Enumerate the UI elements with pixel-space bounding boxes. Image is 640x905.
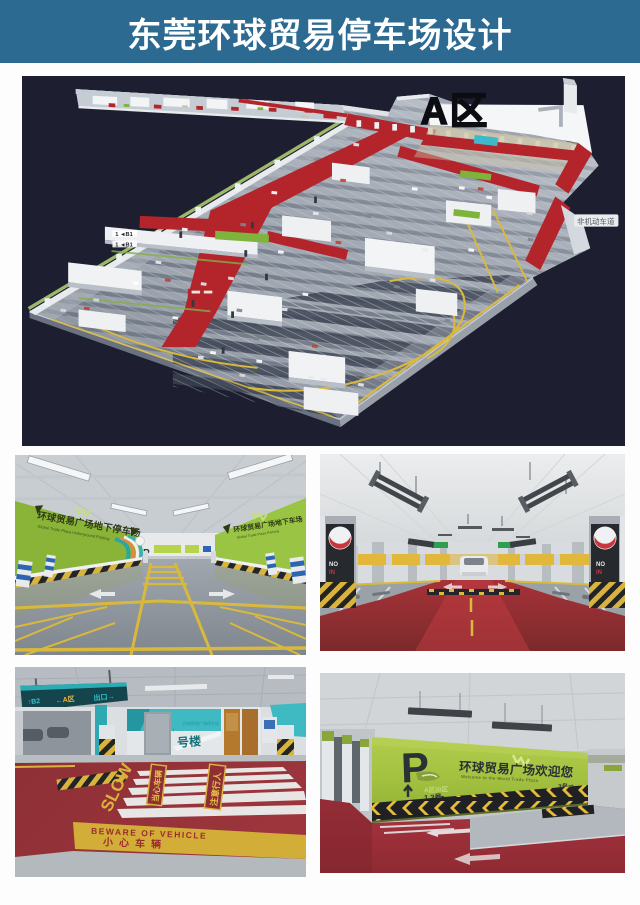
svg-text:P: P xyxy=(400,744,430,792)
svg-text:1 ◄B1: 1 ◄B1 xyxy=(115,242,133,248)
svg-text:A区: A区 xyxy=(421,90,490,132)
svg-text:号楼: 号楼 xyxy=(177,733,202,750)
svg-text:NO: NO xyxy=(596,562,605,568)
svg-text:↑: ↑ xyxy=(172,728,175,734)
svg-text:←A区: ←A区 xyxy=(55,695,75,705)
svg-text:IN: IN xyxy=(596,570,602,576)
svg-text:1 ◄B1: 1 ◄B1 xyxy=(115,232,133,238)
svg-text:IN: IN xyxy=(329,570,335,576)
svg-text:环球贸易广场停车场: 环球贸易广场停车场 xyxy=(183,720,219,726)
svg-text:NO: NO xyxy=(329,562,338,568)
svg-text:↑B2: ↑B2 xyxy=(27,698,40,706)
svg-text:非机动车道: 非机动车道 xyxy=(577,216,615,226)
